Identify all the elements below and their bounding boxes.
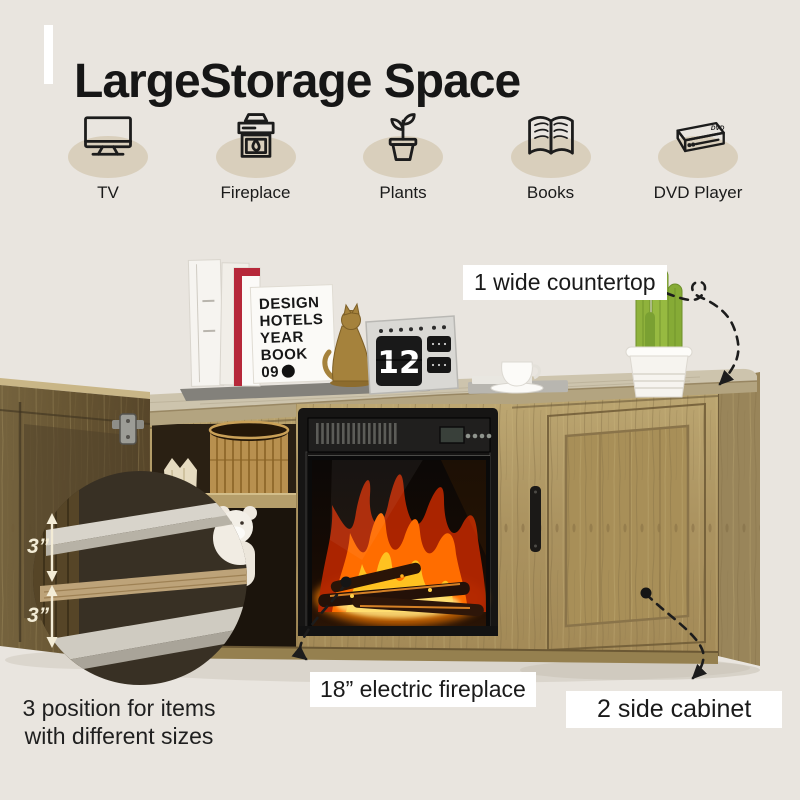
door-handle	[530, 486, 541, 552]
countertop-annotation: 1 wide countertop	[463, 265, 667, 300]
caption-line-1: 3 position for items	[22, 695, 215, 721]
fireplace-display	[440, 427, 464, 443]
flip-calendar: 12	[366, 316, 458, 394]
storage-basket	[210, 422, 288, 496]
fireplace-insert	[296, 404, 512, 652]
book-line: HOTELS	[259, 311, 323, 330]
product-infographic: LargeStorage Space TV	[0, 0, 800, 800]
decor-books: DESIGN HOTELS YEAR BOOK 09	[188, 260, 335, 387]
design-book: DESIGN HOTELS YEAR BOOK 09	[250, 285, 335, 384]
book-line: 09	[261, 364, 279, 382]
caption-line-2: with different sizes	[25, 723, 214, 749]
cabinet-arrow-dot	[641, 588, 652, 599]
shelf-positions-caption: 3 position for items with different size…	[4, 694, 234, 750]
book-line: DESIGN	[259, 294, 320, 313]
side-cabinet-annotation: 2 side cabinet	[566, 691, 782, 728]
fireplace-arrow-dot	[341, 577, 352, 588]
shelf-gap-top-label: 3”	[27, 535, 50, 558]
shelf-gap-bottom-label: 3”	[27, 604, 50, 627]
book-line: YEAR	[260, 329, 304, 348]
fireplace-annotation: 18” electric fireplace	[310, 672, 536, 707]
calendar-day: 12	[377, 345, 420, 381]
book-line: BOOK	[260, 346, 308, 365]
